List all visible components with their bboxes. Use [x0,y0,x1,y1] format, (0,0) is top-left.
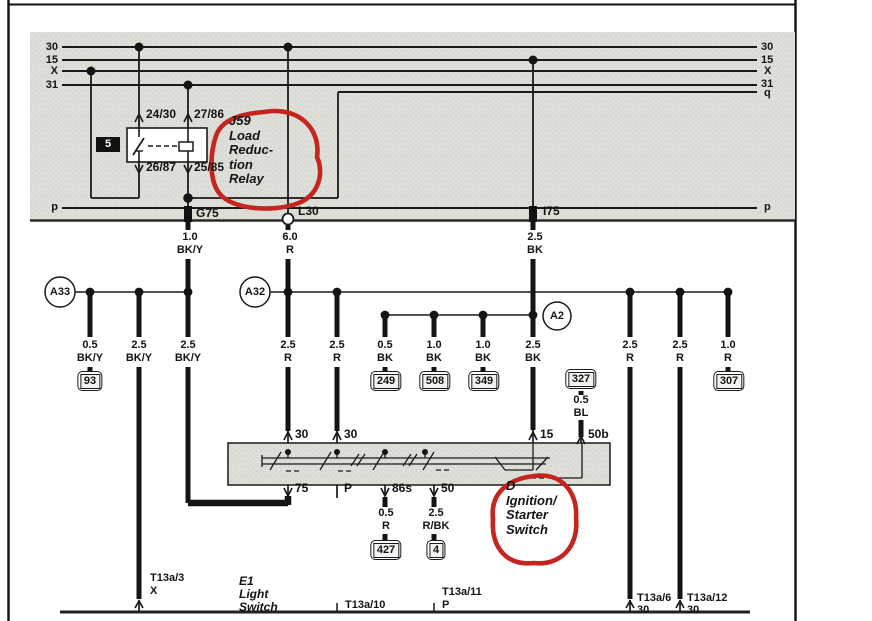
light-switch-label-line: E1 [239,575,278,588]
wire-color: BK [475,352,491,364]
switch-terminal-15: 15 [540,428,553,441]
relay-annotation: J59 Load Reduc- tion Relay [229,114,273,187]
wire-color: BL [574,407,589,419]
ignition-annotation-line: Switch [506,523,557,538]
relay-terminal-26-87: 26/87 [146,161,176,174]
bus-label-p-left: p [36,201,58,213]
ground-code: 349 [471,374,497,389]
ground-code: 249 [373,374,399,389]
wire-size: 2.5 [280,339,295,351]
switch-output-wires [385,497,434,541]
wire-color: BK [426,352,442,364]
ground-code: 508 [422,374,448,389]
ground-box-327: 327 [565,369,596,389]
wire-color: BK [525,352,541,364]
wire-color: R/BK [423,520,450,532]
node-label-A2: A2 [550,310,564,322]
wire-size: 2.5 [672,339,687,351]
ground-code: 327 [568,372,594,387]
switch-terminal-P: P [344,482,352,495]
relay-annotation-line: J59 [229,114,273,129]
wire-size: 0.5 [573,394,588,406]
feed-size-I75: 2.5 [527,231,542,243]
feed-size-G75: 1.0 [182,231,197,243]
feed-color-L30: R [286,244,294,256]
switch-terminal-86s: 86s [392,482,412,495]
ignition-annotation-line: D [506,479,557,494]
bus-label-30-left: 30 [36,41,58,53]
wire-size: 1.0 [426,339,441,351]
pin-label-T13a-3: T13a/3 [150,572,184,584]
bus-label-31-left: 31 [36,79,58,91]
light-switch-label-line: Light [239,588,278,601]
ground-box-307: 307 [713,371,744,391]
wire-color: BK/Y [175,352,201,364]
terminal-I75 [529,206,537,222]
ground-code: 427 [373,543,399,558]
terminal-G75 [184,206,192,222]
pin-circuit-X: X [150,585,157,597]
light-switch-label: E1 Light Switch [239,575,278,614]
wire-color: R [626,352,634,364]
relay-terminal-25-85: 25/85 [194,161,224,174]
ground-box-427: 427 [370,540,401,560]
wire-color: BK [377,352,393,364]
connector-label-G75: G75 [196,207,219,220]
wire-size: 2.5 [131,339,146,351]
pin-circuit-30: 30 [637,604,649,616]
ignition-annotation-line: Ignition/ [506,494,557,509]
node-label-A33: A33 [50,286,70,298]
pin-label-T13a-10: T13a/10 [345,599,385,611]
wire-size: 0.5 [378,507,393,519]
wire-color: BK/Y [126,352,152,364]
relay-annotation-line: tion [229,158,273,173]
bus-label-p-right: p [764,201,771,213]
switch-terminal-30a: 30 [295,428,308,441]
wire-u-route-75 [188,496,288,505]
feed-size-L30: 6.0 [282,231,297,243]
pin-circuit-30b: 30 [687,604,699,616]
feed-color-I75: BK [527,244,543,256]
relay-slot-number: 5 [96,137,120,152]
pin-label-T13a-11: T13a/11 [442,586,482,598]
bus-label-q-right: q [764,87,771,99]
connector-label-L30: L30 [298,205,319,218]
wire-size: 2.5 [428,507,443,519]
wire-color: R [284,352,292,364]
ground-box-249: 249 [370,371,401,391]
wire-size: 2.5 [329,339,344,351]
switch-terminal-50b: 50b [588,428,609,441]
switch-terminal-30b: 30 [344,428,357,441]
ground-code: 93 [80,374,100,389]
pin-circuit-P: P [442,599,449,611]
ignition-switch-annotation: D Ignition/ Starter Switch [506,479,557,537]
bus-label-X-right: X [764,65,771,77]
wire-size: 1.0 [720,339,735,351]
relay-annotation-line: Load [229,129,273,144]
ground-box-93: 93 [77,371,102,391]
ground-code: 307 [716,374,742,389]
relay-annotation-line: Reduc- [229,143,273,158]
wire-color: R [724,352,732,364]
bus-label-30-right: 30 [761,41,773,53]
switch-terminal-50: 50 [441,482,454,495]
wire-size: 1.0 [475,339,490,351]
ground-box-4: 4 [426,540,445,560]
connector-label-I75: I75 [543,205,560,218]
wire-color: R [333,352,341,364]
wire-color: R [676,352,684,364]
ground-code: 4 [429,543,443,558]
wire-size: 0.5 [82,339,97,351]
ground-box-508: 508 [419,371,450,391]
terminal-L30 [283,214,294,225]
node-label-A32: A32 [245,286,265,298]
wire-color: BK/Y [77,352,103,364]
relay-annotation-line: Relay [229,172,273,187]
wire-size: 2.5 [525,339,540,351]
ground-box-349: 349 [468,371,499,391]
pin-label-T13a-6: T13a/6 [637,592,671,604]
light-switch-label-line: Switch [239,601,278,614]
bus-label-X-left: X [36,65,58,77]
ignition-annotation-line: Starter [506,508,557,523]
feed-color-G75: BK/Y [177,244,203,256]
wire-size: 2.5 [622,339,637,351]
switch-terminal-75: 75 [295,482,308,495]
relay-terminal-27-86: 27/86 [194,108,224,121]
wire-size: 0.5 [377,339,392,351]
relay-terminal-24-30: 24/30 [146,108,176,121]
wire-color: R [382,520,390,532]
pin-label-T13a-12: T13a/12 [687,592,727,604]
node-circles [45,277,571,330]
wiring-diagram-page: 30 15 X 31 p 30 15 X 31 q p 24/30 27/86 … [0,0,872,621]
wire-size: 2.5 [180,339,195,351]
